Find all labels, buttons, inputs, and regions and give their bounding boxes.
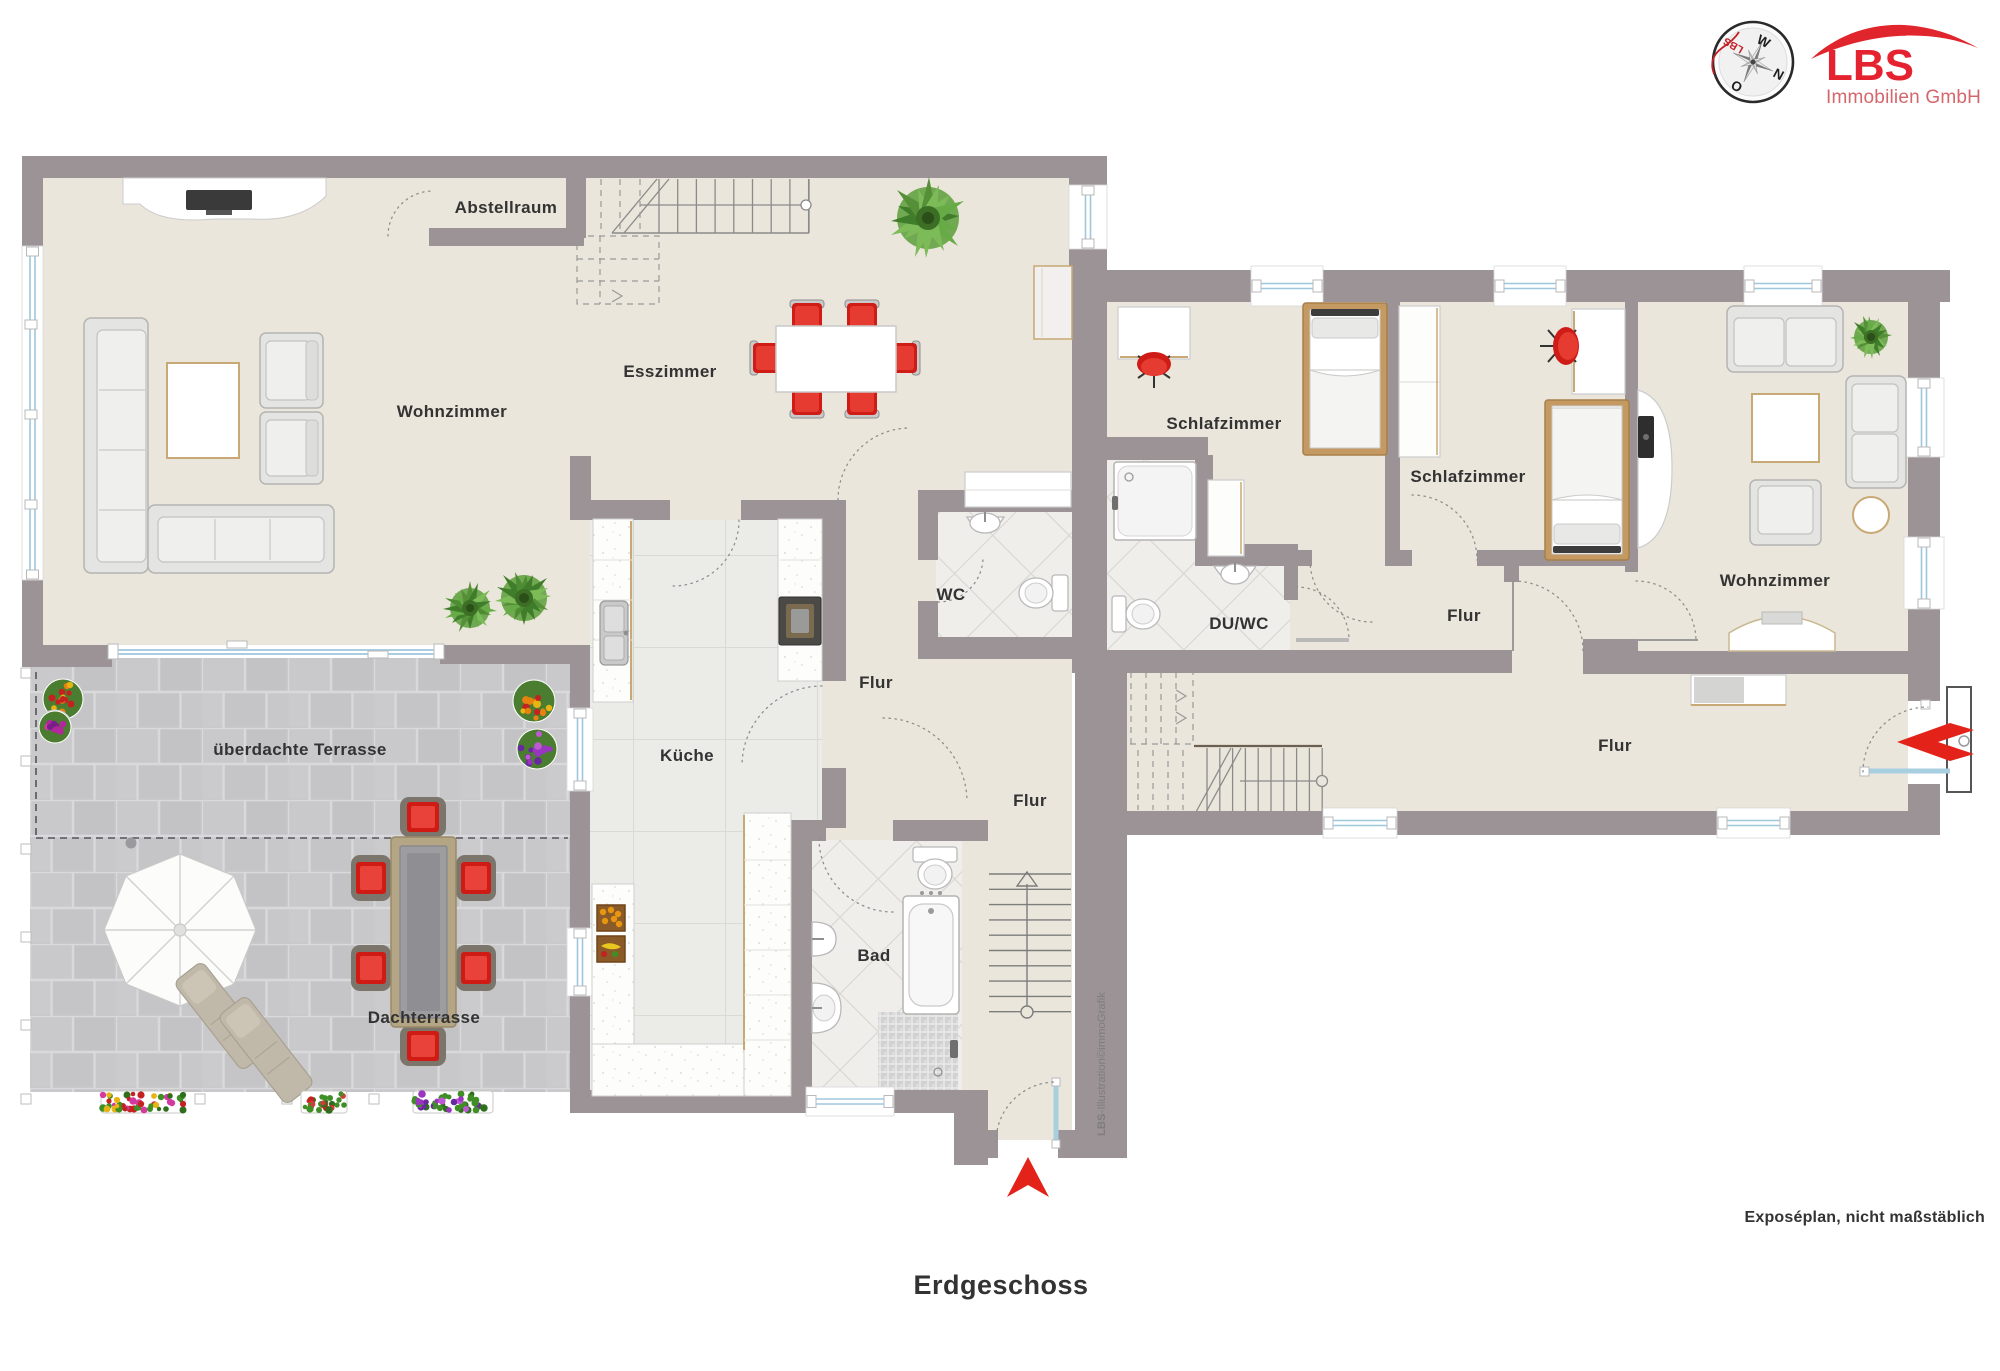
svg-text:Esszimmer: Esszimmer <box>623 362 716 381</box>
svg-text:Dachterrasse: Dachterrasse <box>368 1008 481 1027</box>
svg-text:Erdgeschoss: Erdgeschoss <box>913 1270 1088 1300</box>
svg-text:Schlafzimmer: Schlafzimmer <box>1166 414 1281 433</box>
svg-text:Flur: Flur <box>1598 736 1632 755</box>
svg-text:Flur: Flur <box>1447 606 1481 625</box>
svg-text:Schlafzimmer: Schlafzimmer <box>1410 467 1525 486</box>
svg-text:WC: WC <box>936 585 965 604</box>
svg-text:Flur: Flur <box>859 673 893 692</box>
svg-text:Immobilien GmbH: Immobilien GmbH <box>1826 87 1981 108</box>
svg-text:überdachte Terrasse: überdachte Terrasse <box>213 740 387 759</box>
svg-text:Küche: Küche <box>660 746 714 765</box>
svg-text:DU/WC: DU/WC <box>1209 614 1269 633</box>
svg-text:Wohnzimmer: Wohnzimmer <box>397 402 507 421</box>
svg-text:Wohnzimmer: Wohnzimmer <box>1720 571 1830 590</box>
svg-text:Bad: Bad <box>857 946 890 965</box>
svg-text:Exposéplan, nicht maßstäblich: Exposéplan, nicht maßstäblich <box>1744 1209 1985 1226</box>
svg-text:Flur: Flur <box>1013 791 1047 810</box>
svg-text:LBS: LBS <box>1826 41 1914 90</box>
svg-text:LBS-Illustration©immoGrafik: LBS-Illustration©immoGrafik <box>1096 992 1108 1136</box>
svg-text:Abstellraum: Abstellraum <box>455 198 558 217</box>
